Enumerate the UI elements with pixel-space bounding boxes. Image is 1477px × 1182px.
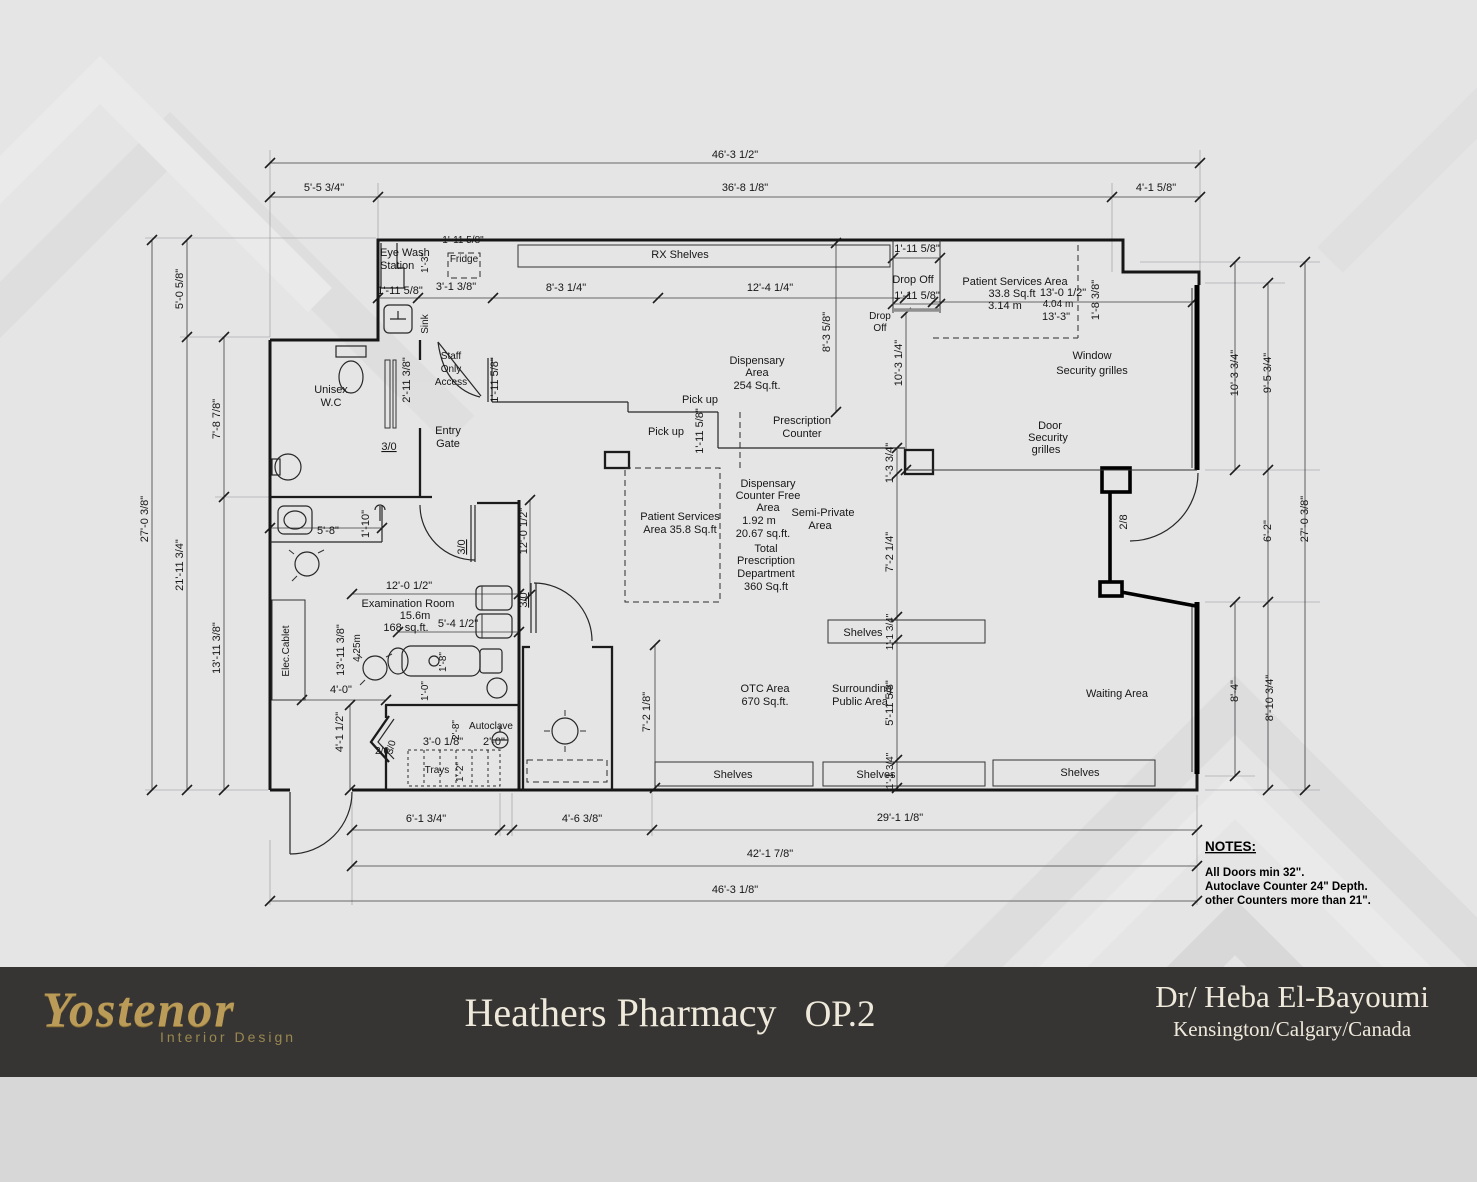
label-psa-3: 3.14 m: [988, 300, 1022, 312]
label-sur-2: Public Area: [832, 696, 889, 708]
label-drop-off: Drop Off: [892, 274, 934, 286]
dim-tray-d: 1'-2": [455, 762, 466, 782]
label-tot-4: 360 Sq.ft: [744, 581, 788, 593]
label-staff-1: Staff: [441, 351, 462, 362]
dim-left-mid: 21'-11 3/4": [174, 539, 186, 591]
dim-gap: 1'-0": [420, 681, 431, 701]
label-autoclave: Autoclave: [469, 721, 513, 732]
dim-row-b: 3'-1 3/8": [436, 281, 476, 293]
dim-wait-h1: 8'-4": [1229, 680, 1241, 702]
label-doorg-2: Security: [1028, 432, 1068, 444]
label-window-1: Window: [1072, 350, 1111, 362]
bottom-margin: [0, 1077, 1477, 1182]
door-tag-right: 2/8: [1118, 514, 1130, 529]
dim-pickup-w: 1'-11 5/8": [694, 408, 706, 454]
label-entry-1: Entry: [435, 425, 461, 437]
label-exam-1: Examination Room: [362, 598, 455, 610]
label-psb-1: Patient Services: [640, 511, 720, 523]
company-logo-subtitle: Interior Design: [160, 1029, 296, 1045]
label-unisex-2: W.C: [321, 397, 342, 409]
label-presc-2: Counter: [782, 428, 821, 440]
dim-row-d: 12'-4 1/4": [747, 282, 793, 294]
door-tag-wc: 3/0: [381, 441, 396, 453]
dim-left-top: 5'-0 5/8": [174, 269, 186, 309]
dim-top-mid: 36'-8 1/8": [722, 182, 768, 194]
project-title: Heathers Pharmacy: [464, 990, 776, 1035]
client-name: Dr/ Heba El-Bayoumi: [1155, 979, 1429, 1015]
dim-wc-door-side: 2'-11 3/8": [401, 357, 413, 403]
dim-otc-v: 7'-2 1/8": [641, 692, 653, 732]
label-shelves-b3: Shelves: [1060, 767, 1100, 779]
door-tag-vest-b: 3/0: [384, 739, 398, 756]
label-entry-2: Gate: [436, 438, 460, 450]
label-drop-1: Drop: [869, 311, 891, 322]
dim-ps-w: 13'-0 1/2": [1040, 287, 1086, 299]
dim-bot-b: 4'-6 3/8": [562, 813, 602, 825]
label-psa-1: Patient Services Area: [962, 276, 1068, 288]
label-eye-wash-2: Station: [380, 260, 414, 272]
dim-exam-height-inner: 13'-11 3/8": [335, 624, 347, 676]
label-semi-2: Area: [808, 520, 832, 532]
dim-exam-height-m: 4.25m: [352, 634, 363, 662]
dim-chair-d: 1'-8": [438, 652, 449, 672]
label-tot-3: Department: [737, 568, 794, 580]
label-dcf-3: Area: [756, 502, 780, 514]
dim-wc-height: 7'-8 7/8": [211, 399, 223, 439]
label-pickup-a: Pick up: [682, 394, 718, 406]
client-block: Dr/ Heba El-Bayoumi Kensington/Calgary/C…: [1155, 979, 1429, 1042]
label-otc-2: 670 Sq.ft.: [741, 696, 788, 708]
label-shelves-b2: Shelves: [856, 769, 896, 781]
door-tag-exam: 3/0: [456, 539, 468, 554]
label-psa-2: 33.8 Sq.ft: [988, 288, 1035, 300]
label-exam-2: 15.6m: [400, 610, 431, 622]
dim-elec-w: 4'-0": [330, 684, 352, 696]
label-dcf-2: Counter Free: [736, 490, 801, 502]
notes-title: NOTES:: [1205, 839, 1256, 854]
company-logo: Yostenor Interior Design: [42, 985, 296, 1045]
company-logo-text: Yostenor: [42, 985, 296, 1033]
label-dcf-4: 1.92 m: [742, 515, 776, 527]
label-unisex-1: Unisex: [314, 384, 348, 396]
label-psb-2: Area 35.8 Sq.ft: [643, 524, 716, 536]
label-sink: Sink: [420, 313, 431, 333]
dim-shelf-d1: 1'-1 3/4": [885, 613, 896, 650]
label-staff-3: Access: [435, 377, 467, 388]
dim-drop-w1: 1'-11 5/8": [894, 243, 940, 255]
notes-line-1: All Doors min 32".: [1205, 867, 1304, 879]
title-bar: Yostenor Interior Design Heathers Pharma…: [0, 967, 1477, 1077]
dim-tray-w: 3'-0 1/8": [423, 736, 463, 748]
dim-staff-counter: 1'-11 5/8": [489, 357, 501, 403]
label-fridge: Fridge: [450, 254, 479, 265]
dim-auto-w: 2'-0": [483, 736, 505, 748]
label-eye-wash-1: Eye Wash: [380, 247, 430, 259]
label-window-2: Security grilles: [1056, 365, 1128, 377]
label-trays: Trays: [425, 765, 450, 776]
dim-disp-depth: 8'-3 5/8": [821, 312, 833, 352]
label-disp-2: Area: [745, 367, 769, 379]
label-semi-1: Semi-Private: [792, 507, 855, 519]
label-tot-1: Total: [754, 543, 777, 555]
label-shelves-b1: Shelves: [713, 769, 753, 781]
label-doorg-3: grilles: [1032, 444, 1061, 456]
dim-exam-height: 13'-11 3/8": [211, 622, 223, 674]
dim-overall-top: 46'-3 1/2": [712, 149, 758, 161]
label-disp-1: Dispensary: [729, 355, 785, 367]
dim-right-overall: 27'-0 3/8": [1299, 496, 1311, 542]
dim-fridge-w: 1'-11 5/8": [442, 235, 484, 246]
label-presc-1: Prescription: [773, 415, 831, 427]
label-drop-2: Off: [873, 323, 886, 334]
dim-win-h2: 9'-5 3/4": [1262, 353, 1274, 393]
label-waiting: Waiting Area: [1086, 688, 1149, 700]
label-sur-1: Surrounding: [832, 683, 892, 695]
notes-line-2: Autoclave Counter 24" Depth.: [1205, 881, 1368, 893]
dim-top-right: 4'-1 5/8": [1136, 182, 1176, 194]
window-glazing: [1100, 285, 1197, 774]
dim-semi-h: 7'-2 1/4": [884, 532, 896, 572]
label-dcf-1: Dispensary: [740, 478, 796, 490]
text-labels: 46'-3 1/2" 5'-5 3/4" 36'-8 1/8" 4'-1 5/8…: [139, 149, 1371, 907]
option-label: OP.2: [777, 994, 876, 1035]
client-location: Kensington/Calgary/Canada: [1155, 1017, 1429, 1042]
dim-ps-w2: 13'-3": [1042, 311, 1070, 323]
dim-mid-v: 10'-3 1/4": [893, 340, 905, 386]
label-staff-2: Only: [441, 364, 462, 375]
notes-line-3: other Counters more than 21".: [1205, 895, 1371, 907]
door-tag-consult: 3/0: [518, 592, 530, 607]
label-exam-3: 168 sq.ft.: [383, 622, 428, 634]
label-rx-shelves: RX Shelves: [651, 249, 709, 261]
dim-col-h: 1'-3 3/4": [884, 443, 896, 483]
label-elec-cabinet: Elec.Cablet: [281, 625, 292, 676]
project-title-block: Heathers PharmacyOP.2: [360, 989, 980, 1036]
dim-sink-d: 1'-10": [360, 510, 372, 538]
dim-left-overall: 27'-0 3/8": [139, 496, 151, 542]
dim-bot-e: 46'-3 1/8": [712, 884, 758, 896]
dim-drop-w2: 1'-11 5/8": [894, 290, 940, 302]
dim-win-h1: 10'-3 3/4": [1229, 350, 1241, 396]
dim-sink-w: 5'-8": [317, 525, 339, 537]
dim-bot-c: 29'-1 1/8": [877, 812, 923, 824]
label-doorg-1: Door: [1038, 420, 1062, 432]
label-shelves-mid: Shelves: [843, 627, 883, 639]
dim-wait-h2: 8'-10 3/4": [1264, 675, 1276, 721]
dim-vest-h: 4'-1 1/2": [334, 712, 346, 752]
dim-bot-d: 42'-1 7/8": [747, 848, 793, 860]
dim-chair-w: 5'-4 1/2": [438, 618, 478, 630]
label-dcf-5: 20.67 sq.ft.: [736, 528, 790, 540]
label-pickup-b: Pick up: [648, 426, 684, 438]
label-disp-3: 254 Sq.ft.: [733, 380, 780, 392]
dim-row-a: 1'-11 5/8": [377, 285, 423, 297]
dim-top-left: 5'-5 3/4": [304, 182, 344, 194]
dim-exam-w: 12'-0 1/2": [386, 580, 432, 592]
dim-row-c: 8'-3 1/4": [546, 282, 586, 294]
dim-exam-w-v: 12'-0 1/2": [518, 508, 530, 554]
dim-ps-wm: 4.04 m: [1043, 299, 1074, 310]
label-tot-2: Prescription: [737, 555, 795, 567]
dim-bot-a: 6'-1 3/4": [406, 813, 446, 825]
label-otc-1: OTC Area: [741, 683, 791, 695]
dim-door-h: 6'-2": [1262, 520, 1274, 542]
dim-step-h: 1'-8 3/8": [1090, 280, 1102, 320]
